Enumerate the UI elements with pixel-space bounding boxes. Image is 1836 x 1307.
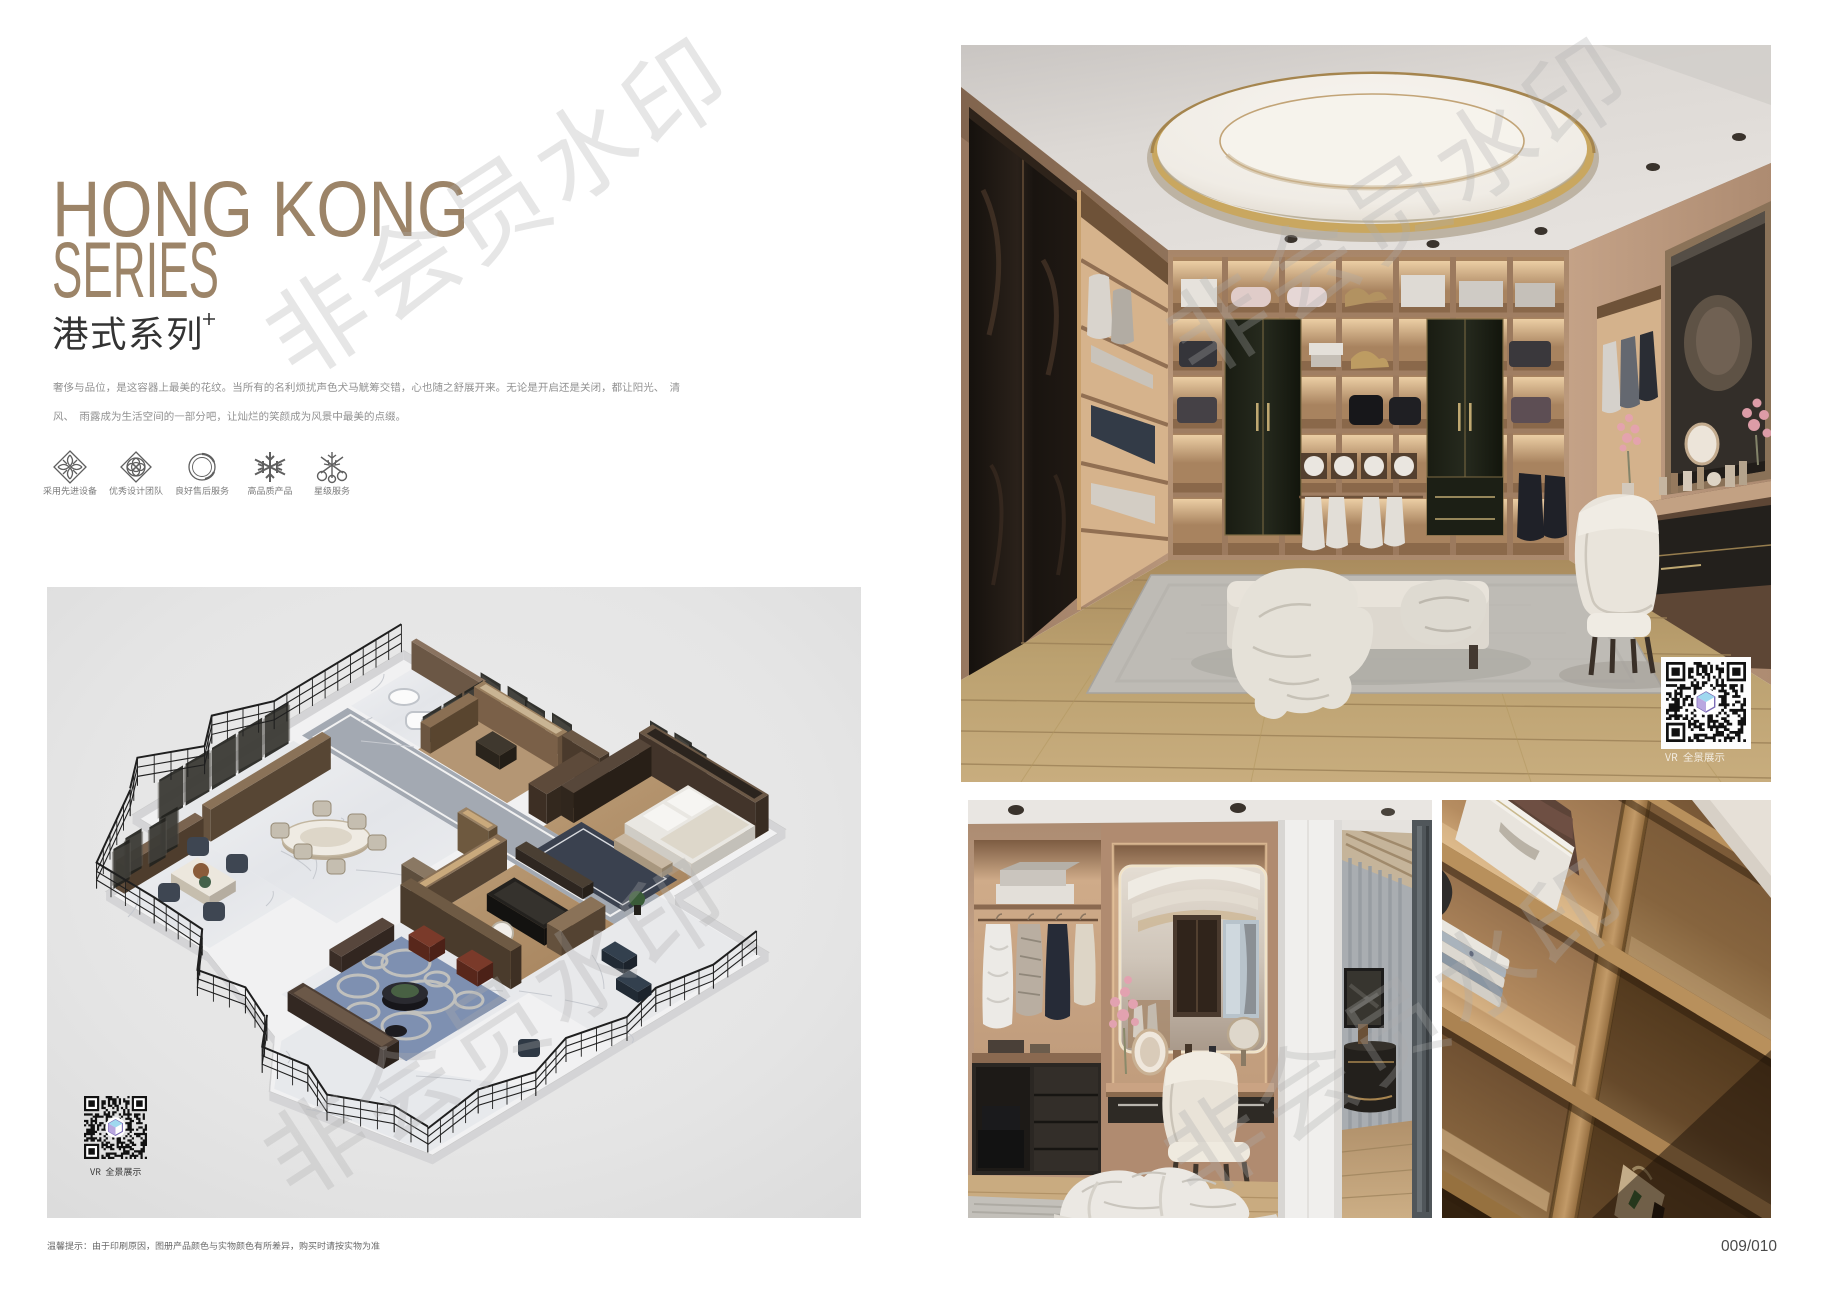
svg-text:009/010: 009/010: [1721, 1238, 1777, 1255]
svg-text:SERIES: SERIES: [52, 225, 219, 314]
